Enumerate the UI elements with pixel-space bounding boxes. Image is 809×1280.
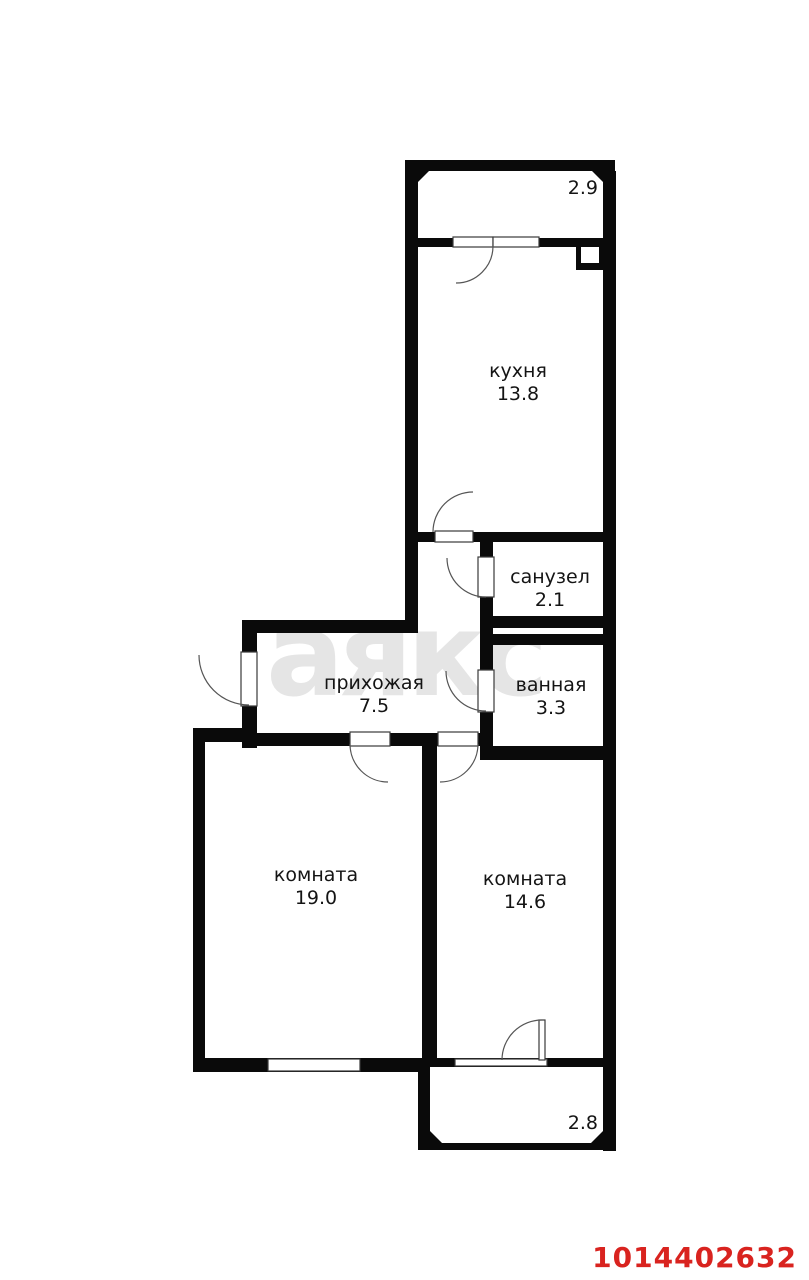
kitchen-door-arc <box>433 492 473 532</box>
label-bath-area: 3.3 <box>516 697 587 720</box>
label-hallway: прихожая 7.5 <box>324 672 424 718</box>
room1-door-leaf <box>350 732 390 746</box>
listing-id: 1014402632 <box>592 1241 797 1274</box>
wc-door-leaf <box>478 557 494 597</box>
balcony-door-leaf <box>453 237 493 247</box>
label-room1-area: 19.0 <box>274 887 358 910</box>
label-wc-area: 2.1 <box>510 589 590 612</box>
vent-shaft-inner <box>581 247 599 263</box>
label-room2: комната 14.6 <box>483 868 567 914</box>
floorplan-canvas: аякс <box>0 0 809 1280</box>
room2-balcony-door-arc <box>502 1020 542 1060</box>
balcony-door-arc <box>456 246 493 283</box>
label-room2-area: 14.6 <box>483 891 567 914</box>
room2-door-leaf <box>438 732 478 746</box>
label-kitchen-name: кухня <box>489 360 547 383</box>
label-room1: комната 19.0 <box>274 864 358 910</box>
room1-window <box>268 1059 360 1071</box>
label-wc: санузел 2.1 <box>510 566 590 612</box>
room2-balcony-window <box>455 1059 547 1066</box>
label-bath: ванная 3.3 <box>516 674 587 720</box>
wall-hallway-top <box>247 620 417 633</box>
floorplan-svg <box>0 0 809 1280</box>
bath-door-leaf <box>478 670 494 712</box>
label-kitchen-area: 13.8 <box>489 383 547 406</box>
wall-outer-left-kitchen <box>405 171 418 633</box>
label-room1-name: комната <box>274 864 358 887</box>
wall-bath-top <box>480 634 615 645</box>
wall-cavity-sliver <box>493 628 603 634</box>
label-hallway-name: прихожая <box>324 672 424 695</box>
label-wc-name: санузел <box>510 566 590 589</box>
label-room2-name: комната <box>483 868 567 891</box>
wall-outer-right <box>603 171 616 1151</box>
wall-outer-left-rooms <box>193 728 205 1072</box>
wall-bath-bottom <box>480 746 615 760</box>
kitchen-door-leaf <box>435 531 473 542</box>
room2-door-arc <box>440 744 478 782</box>
wall-rooms-divider <box>422 733 437 1058</box>
wall-wc-bottom <box>480 616 615 628</box>
room1-door-arc <box>350 744 388 782</box>
room2-balcony-door-leaf <box>539 1020 545 1060</box>
label-kitchen: кухня 13.8 <box>489 360 547 406</box>
label-balcony-bottom: 2.8 <box>568 1112 598 1134</box>
label-bath-name: ванная <box>516 674 587 697</box>
label-balcony-top: 2.9 <box>568 177 598 199</box>
balcony-window <box>493 237 539 247</box>
entrance-door-leaf <box>241 652 257 706</box>
label-hallway-area: 7.5 <box>324 695 424 718</box>
